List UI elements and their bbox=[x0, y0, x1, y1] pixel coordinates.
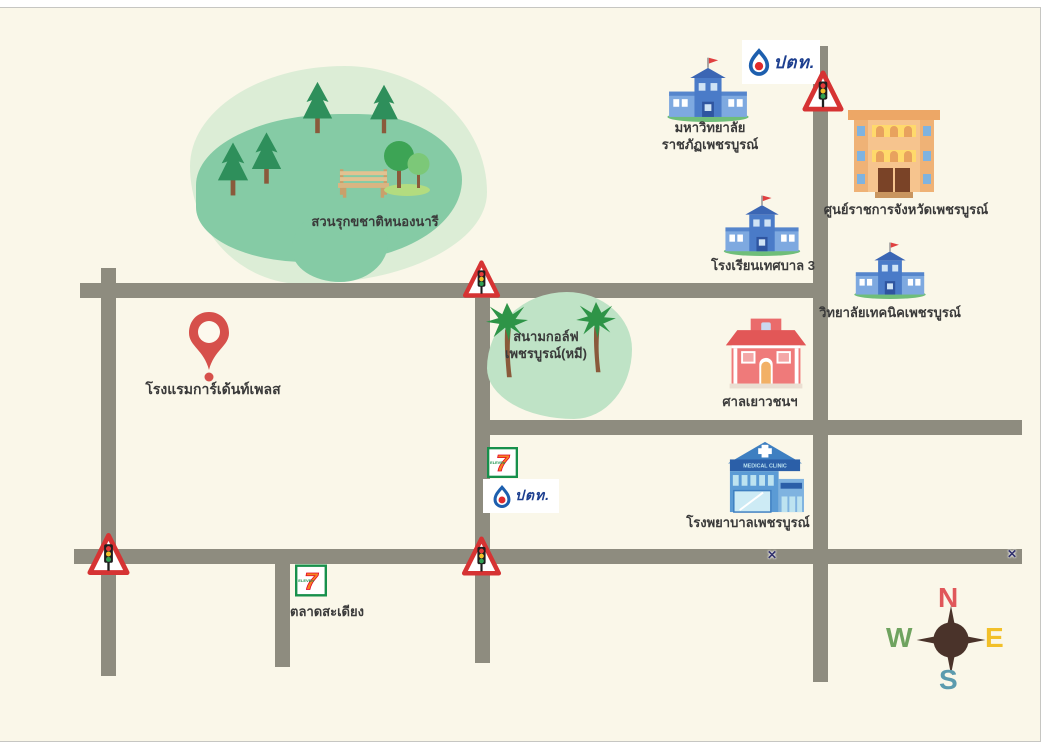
university-label: มหาวิทยาลัย ราชภัฏเพชรบูรณ์ bbox=[635, 119, 785, 153]
traffic-light-sign-icon bbox=[87, 532, 130, 576]
market-label: ตลาดสะเดียง bbox=[257, 603, 397, 620]
technical-college-building-icon bbox=[846, 241, 934, 299]
traffic-light-sign-icon bbox=[461, 536, 502, 576]
government-center-label: ศูนย์ราชการจังหวัดเพชรบูรณ์ bbox=[806, 201, 1006, 218]
technical-college-label: วิทยาลัยเทคนิคเพชรบูรณ์ bbox=[800, 304, 980, 321]
hospital-sign-text: MEDICAL CLINIC bbox=[743, 464, 787, 470]
hotel-label: โรงแรมการ์เด้นท์เพลส bbox=[133, 381, 293, 398]
park-label: สวนรุกขชาติหนองนารี bbox=[295, 213, 455, 230]
x-marker: ✕ bbox=[767, 548, 777, 562]
golf-label: สนามกอล์ฟ เพชรบูรณ์(หมี) bbox=[490, 328, 602, 362]
ptt-flame-icon bbox=[747, 47, 771, 77]
juvenile-court-building-icon bbox=[722, 318, 810, 390]
road-horizontal-middle bbox=[475, 420, 1022, 435]
government-building-icon bbox=[842, 110, 946, 198]
hospital-label: โรงพยาบาลเพชรบูรณ์ bbox=[663, 514, 833, 531]
compass-south-label: S bbox=[939, 666, 958, 694]
hospital-building-icon: MEDICAL CLINIC bbox=[720, 438, 810, 514]
school-label: โรงเรียนเทศบาล 3 bbox=[683, 257, 843, 274]
traffic-light-sign-icon bbox=[802, 70, 844, 112]
university-label-line1: มหาวิทยาลัย bbox=[635, 119, 785, 136]
university-label-line2: ราชภัฏเพชรบูรณ์ bbox=[635, 136, 785, 153]
road-vertical-left bbox=[101, 268, 116, 676]
road-horizontal-bottom bbox=[74, 549, 1022, 564]
seven-eleven-icon: 7 ELEVEn bbox=[295, 564, 327, 597]
pine-tree-icon bbox=[366, 83, 402, 135]
round-trees-icon bbox=[382, 138, 432, 196]
road-vertical-right bbox=[813, 46, 828, 682]
map-screenshot: สวนรุกขชาติหนองนารี สนามกอล์ฟ เพชรบูรณ์(… bbox=[0, 0, 1056, 748]
golf-label-line2: เพชรบูรณ์(หมี) bbox=[490, 345, 602, 362]
seven-eleven-word: ELEVEn bbox=[298, 578, 314, 583]
road-horizontal-top bbox=[80, 283, 828, 298]
compass-north-label: N bbox=[938, 584, 958, 612]
compass-west-label: W bbox=[886, 624, 912, 652]
seven-eleven-word: ELEVEn bbox=[490, 460, 506, 465]
pine-tree-icon bbox=[216, 140, 250, 198]
school-building-icon bbox=[720, 194, 804, 256]
x-marker: ✕ bbox=[1007, 547, 1017, 561]
seven-eleven-icon: 7 ELEVEn bbox=[487, 447, 518, 478]
compass-east-label: E bbox=[985, 624, 1004, 652]
juvenile-court-label: ศาลเยาวชนฯ bbox=[690, 393, 830, 410]
pine-tree-icon bbox=[250, 126, 283, 190]
pine-tree-icon bbox=[300, 80, 335, 135]
ptt-flame-icon bbox=[492, 484, 512, 509]
ptt-text: ปตท. bbox=[515, 485, 550, 507]
hotel-location-pin-icon bbox=[183, 310, 235, 384]
golf-label-line1: สนามกอล์ฟ bbox=[490, 328, 602, 345]
ptt-sign-mid: ปตท. bbox=[483, 479, 559, 513]
traffic-light-sign-icon bbox=[461, 260, 502, 298]
